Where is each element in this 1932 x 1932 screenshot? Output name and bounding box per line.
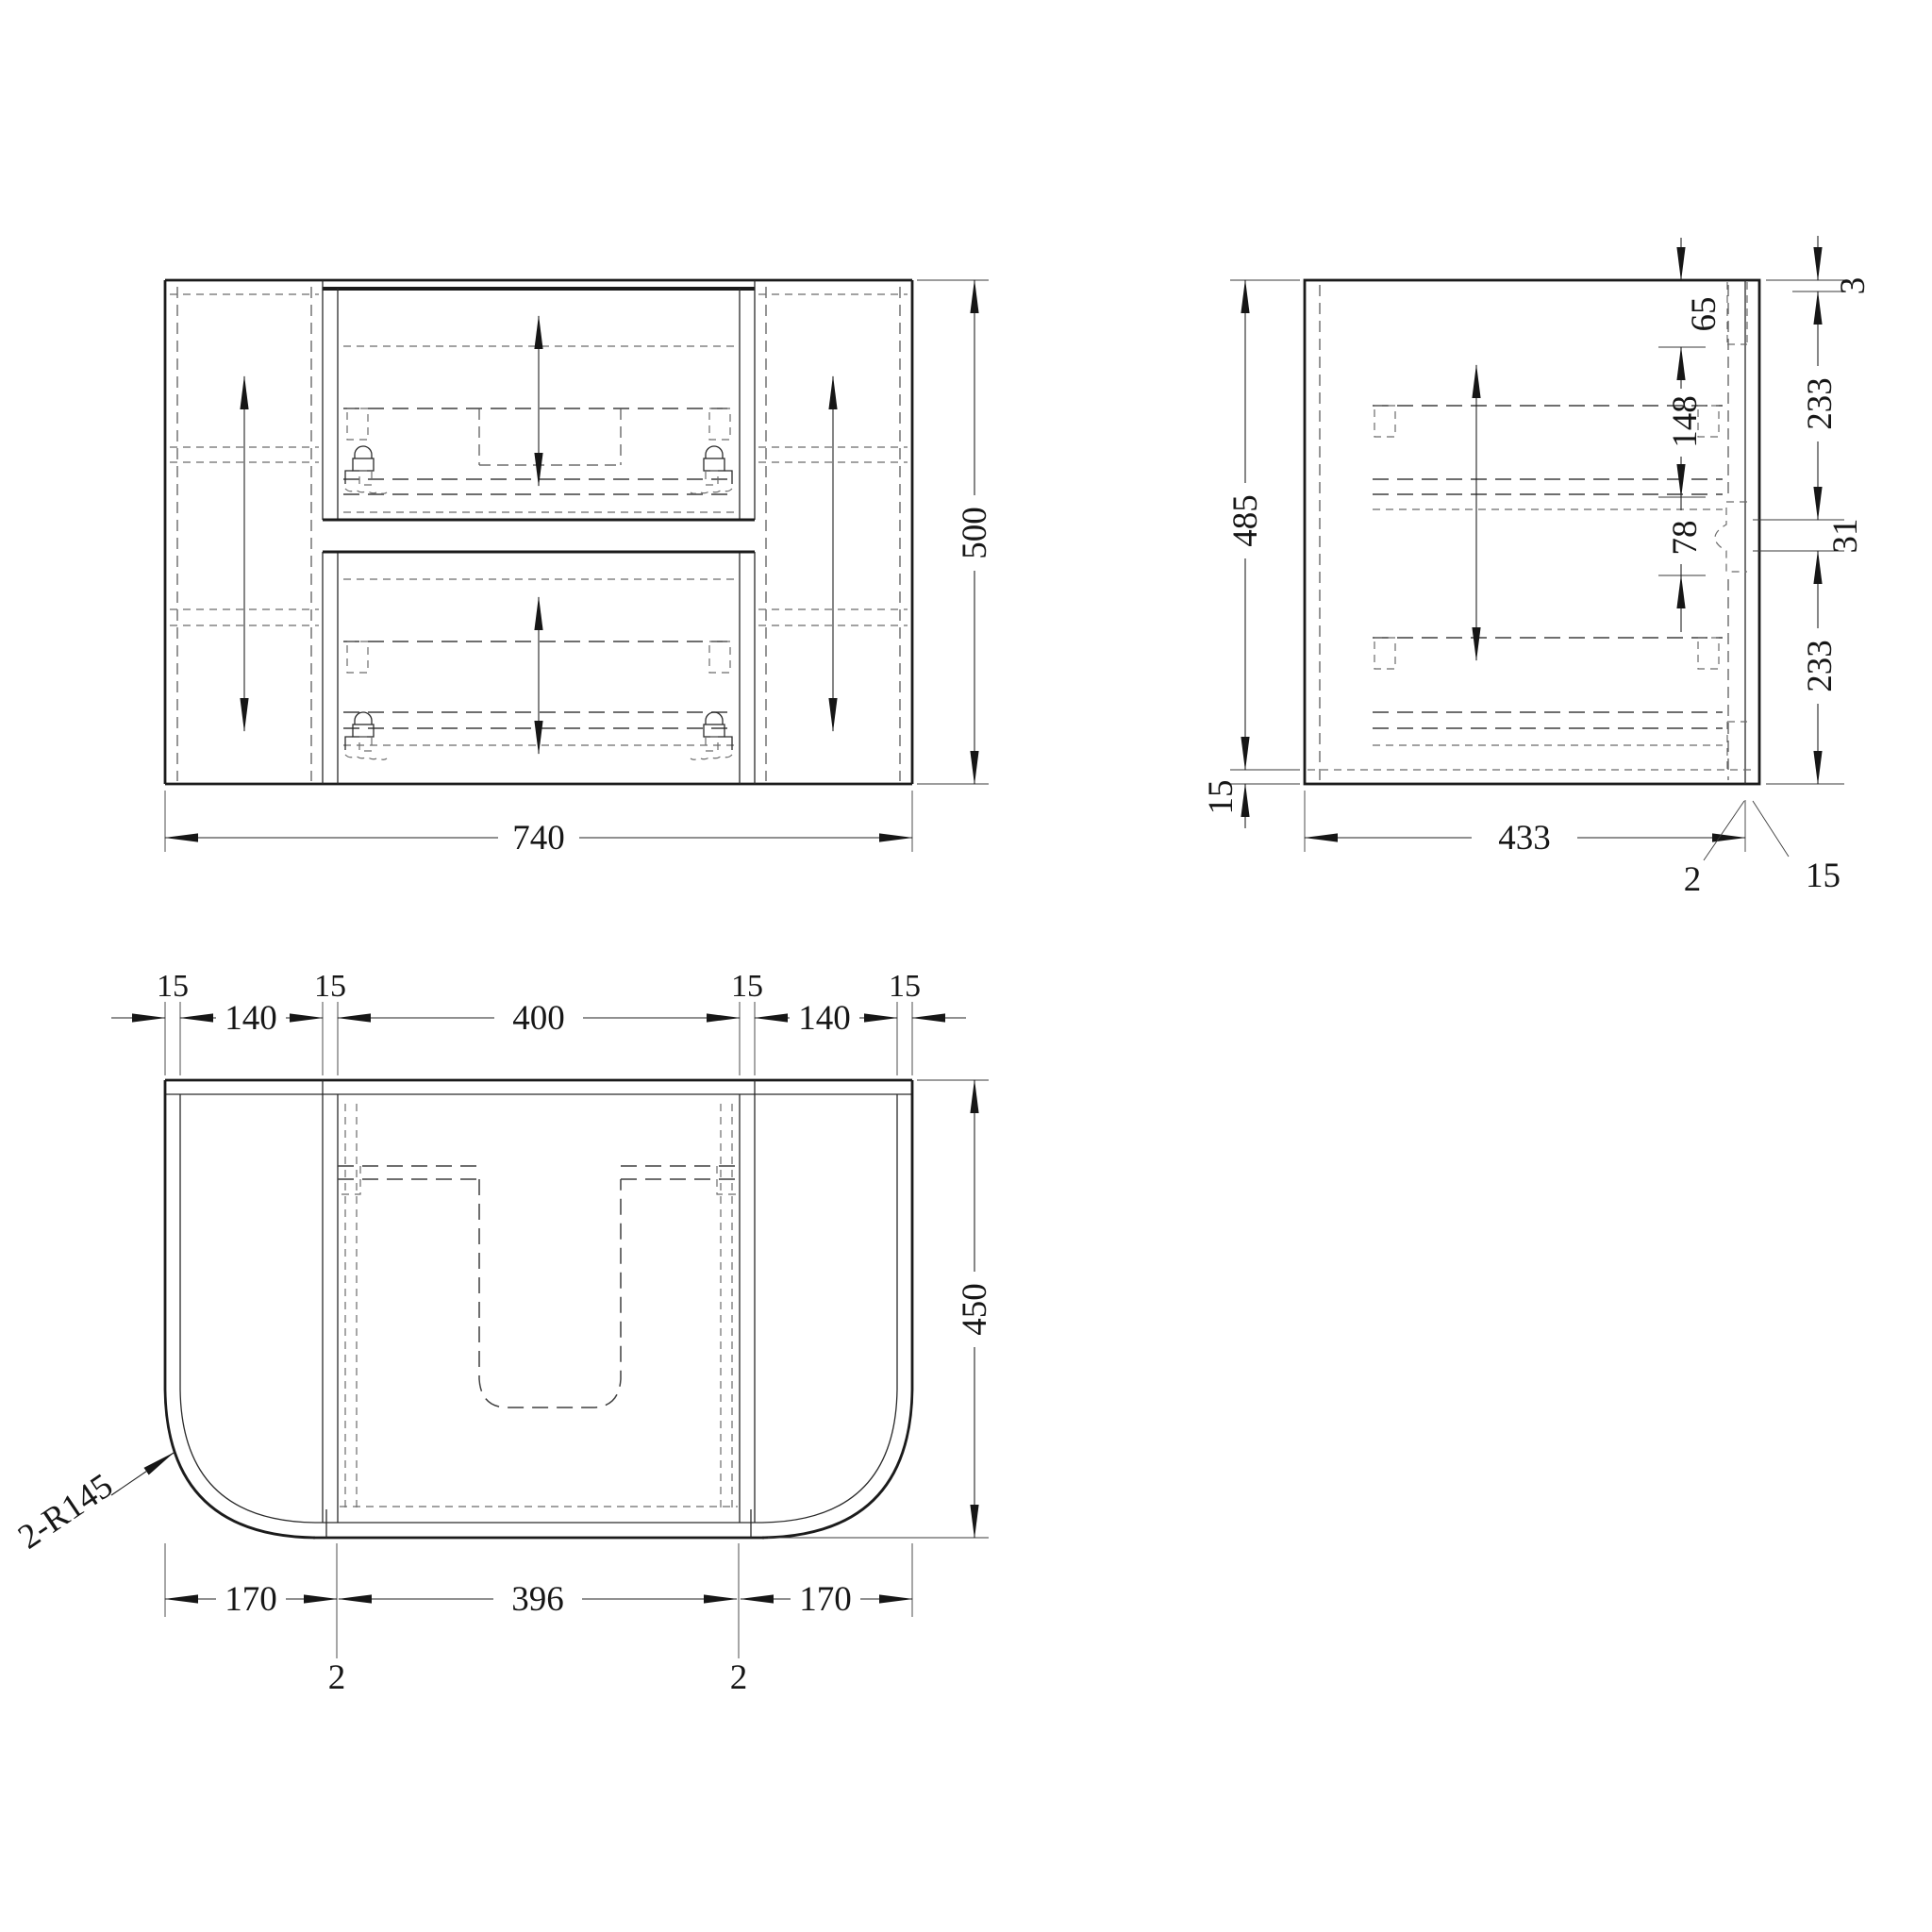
dim-side-depth: 433 <box>1498 819 1551 858</box>
dim-plan-wall-left: 15 <box>314 969 346 1004</box>
leader-front-panel <box>1753 801 1789 857</box>
dim-top-rail: 65 <box>1685 297 1724 332</box>
front-height-dimension: 500 <box>917 280 994 784</box>
plan-sink-cutout-hidden <box>479 1179 621 1407</box>
side-height-dimension: 485 15 <box>1202 280 1300 828</box>
dim-plan-edge-right: 15 <box>889 969 921 1004</box>
dim-side-front-panel: 15 <box>1806 857 1840 895</box>
dim-side-bottom-panel: 15 <box>1202 780 1241 815</box>
dim-top-thickness: 3 <box>1834 277 1873 295</box>
dim-mid-gap: 31 <box>1826 519 1865 554</box>
dim-plan-left-wing: 140 <box>225 999 277 1038</box>
front-view: 740 500 <box>165 280 994 858</box>
dim-plan-bottom-right: 170 <box>799 1580 852 1619</box>
plan-bottom-dimensions: 170 2 396 2 170 <box>165 1543 912 1697</box>
plan-walls <box>323 1080 755 1523</box>
dim-upper-drawer-front: 233 <box>1801 377 1840 430</box>
dim-plan-edge-left: 15 <box>157 969 189 1004</box>
dim-plan-gap-right: 2 <box>730 1658 748 1697</box>
dim-drawer-box-height: 148 <box>1666 395 1705 448</box>
plan-top-dimensions: 15 140 15 400 15 140 15 <box>111 969 966 1075</box>
technical-drawing-canvas: 740 500 <box>0 0 1932 1932</box>
dim-front-width: 740 <box>512 819 565 858</box>
drawing-sheet: 740 500 <box>0 0 1932 1932</box>
drawer-slide-clip-icon <box>691 712 732 759</box>
plan-hidden-drawer-sides <box>345 1104 732 1507</box>
dim-side-front-gap: 2 <box>1684 860 1702 899</box>
side-lower-drawer-box-hidden <box>1373 638 1723 745</box>
side-finger-pull-notch-hidden <box>1715 502 1747 572</box>
side-depth-dimension: 433 2 15 <box>1305 791 1840 899</box>
side-top-rail-hidden <box>1727 282 1747 344</box>
dim-plan-depth: 450 <box>956 1283 994 1336</box>
dim-plan-wall-right: 15 <box>731 969 763 1004</box>
drawer-slide-clip-icon <box>691 446 732 493</box>
dim-plan-gap-left: 2 <box>328 1658 346 1697</box>
drawer-slide-clip-icon <box>345 446 387 493</box>
side-view: 485 15 433 2 15 233 <box>1202 236 1873 899</box>
side-internal-dimension-chain: 65 148 78 <box>1658 238 1724 632</box>
dim-front-height: 500 <box>956 507 994 559</box>
dim-plan-drawer-width: 396 <box>511 1580 564 1619</box>
front-sink-notch-hidden <box>479 408 621 465</box>
dim-plan-bottom-left: 170 <box>225 1580 277 1619</box>
plan-depth-dimension: 450 <box>768 1080 994 1538</box>
side-bottom-rail-hidden <box>1727 722 1747 769</box>
plan-view: 15 140 15 400 15 140 15 170 2 396 2 170 <box>11 969 994 1697</box>
dim-plan-right-wing: 140 <box>798 999 851 1038</box>
drawer-slide-clip-icon <box>345 712 387 759</box>
front-width-dimension: 740 <box>165 791 912 858</box>
front-motion-arrows <box>244 316 833 754</box>
dim-side-height: 485 <box>1226 494 1265 547</box>
plan-outline <box>165 1080 912 1538</box>
dim-box-gap: 78 <box>1666 521 1705 556</box>
plan-shelf-hidden <box>338 1166 740 1194</box>
leader-front-gap <box>1704 801 1744 860</box>
dim-plan-center: 400 <box>512 999 565 1038</box>
side-right-dimension-chain: 233 233 3 31 <box>1753 236 1873 784</box>
dim-corner-radius: 2-R145 <box>11 1466 120 1557</box>
plan-radius-callout: 2-R145 <box>11 1453 174 1557</box>
dim-lower-drawer-front: 233 <box>1801 640 1840 692</box>
